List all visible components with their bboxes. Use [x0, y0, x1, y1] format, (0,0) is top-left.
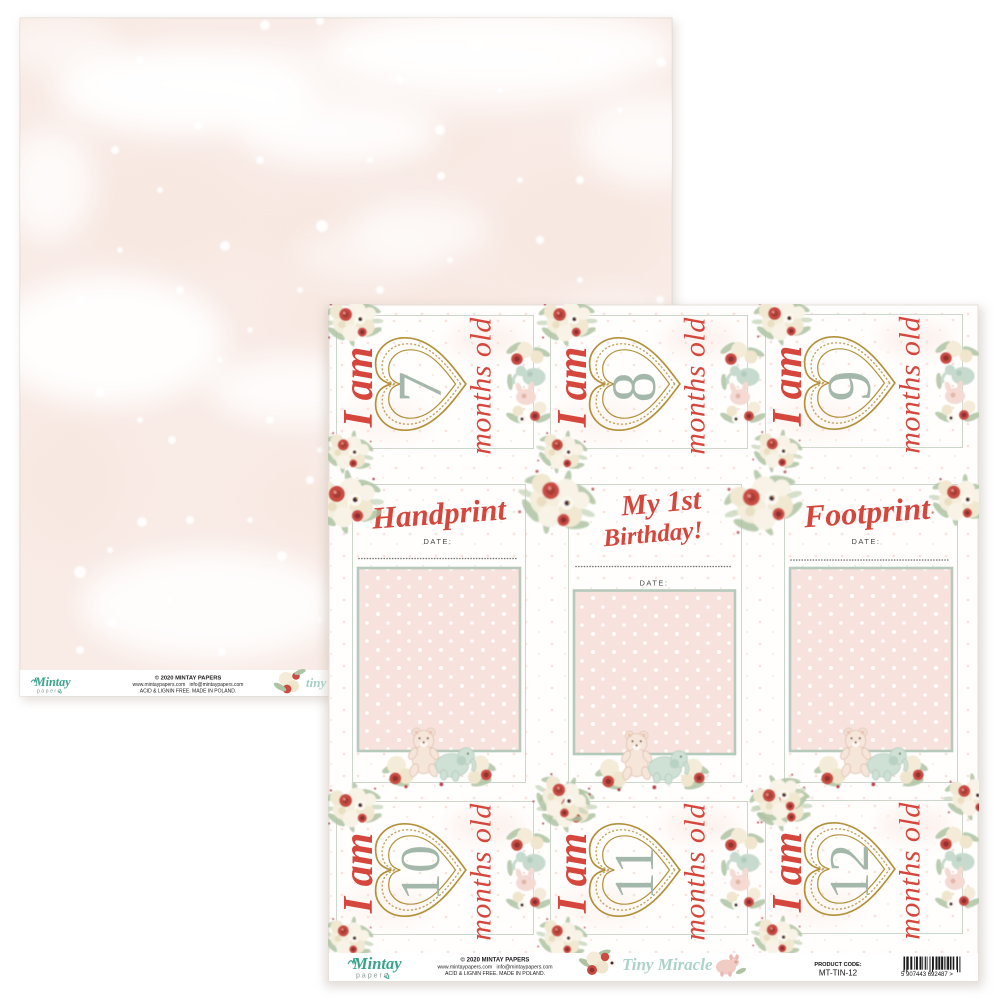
svg-text:Tiny Miracle: Tiny Miracle — [622, 955, 713, 974]
svg-text:DATE:: DATE: — [639, 579, 668, 588]
svg-text:www.mintaypapers.com info@mi: www.mintaypapers.com info@mintaypapers.c… — [437, 964, 552, 970]
svg-text:9: 9 — [816, 371, 884, 402]
svg-text:10: 10 — [390, 845, 452, 901]
svg-text:ACID & LIGNIN FREE. MADE IN PO: ACID & LIGNIN FREE. MADE IN POLAND. — [445, 971, 545, 977]
svg-text:8: 8 — [601, 372, 669, 403]
svg-text:PRODUCT CODE:: PRODUCT CODE: — [814, 962, 861, 968]
svg-text:ACID & LIGNIN FREE. MADE IN PO: ACID & LIGNIN FREE. MADE IN POLAND. — [140, 688, 236, 694]
svg-text:5 907443 692487 >: 5 907443 692487 > — [901, 972, 953, 978]
svg-text:12: 12 — [819, 844, 881, 900]
svg-text:© 2020 MINTAY PAPERS: © 2020 MINTAY PAPERS — [461, 956, 530, 963]
svg-text:© 2020 MINTAY PAPERS: © 2020 MINTAY PAPERS — [155, 675, 222, 682]
svg-text:DATE:: DATE: — [423, 537, 452, 546]
svg-text:11: 11 — [604, 846, 666, 900]
svg-text:DATE:: DATE: — [851, 537, 880, 546]
svg-text:tiny: tiny — [306, 675, 326, 690]
svg-text:7: 7 — [387, 372, 455, 403]
svg-text:www.mintaypapers.com info@mi: www.mintaypapers.com info@mintaypapers.c… — [133, 682, 244, 688]
svg-text:MT-TIN-12: MT-TIN-12 — [819, 969, 858, 978]
